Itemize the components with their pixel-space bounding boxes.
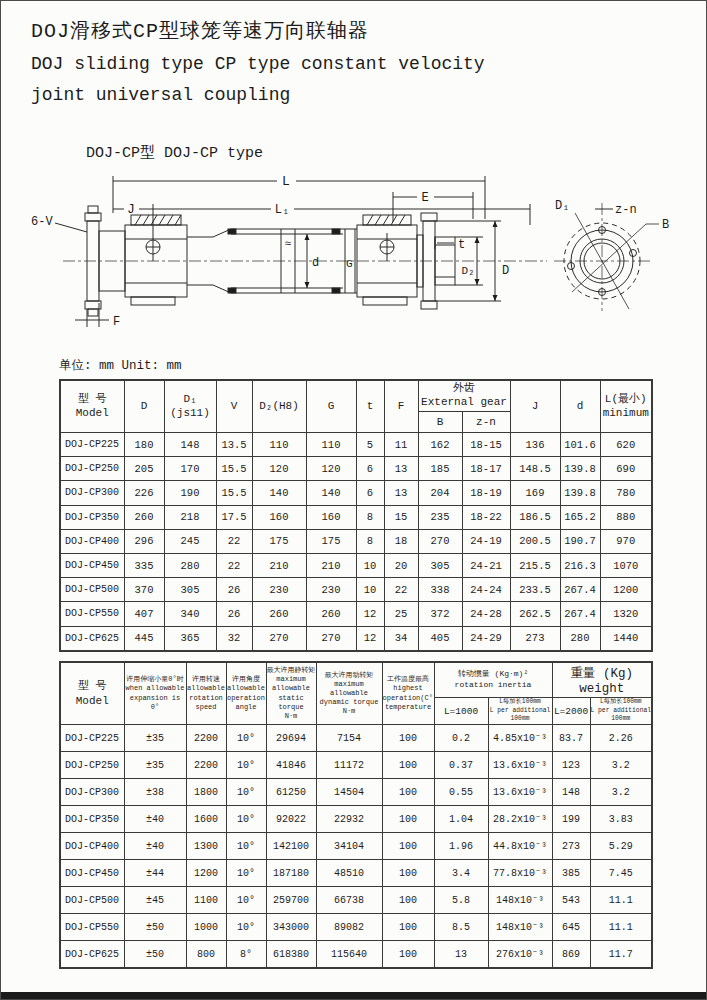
value-cell: 200.5: [510, 529, 560, 553]
value-cell: 1600: [186, 806, 226, 833]
table-row: DOJ-CP225±35220010°2969471541000.24.85x1…: [60, 725, 652, 752]
value-cell: 13.6x10⁻³: [488, 779, 552, 806]
value-cell: 100: [382, 914, 434, 941]
value-cell: 270: [418, 529, 462, 553]
value-cell: 100: [382, 860, 434, 887]
table-row: DOJ-CP35026021817.516016081523518-22186.…: [60, 505, 652, 529]
value-cell: 24-19: [462, 529, 510, 553]
value-cell: 34104: [316, 833, 382, 860]
value-cell: 405: [418, 626, 462, 651]
value-cell: 190.7: [560, 529, 600, 553]
value-cell: 407: [124, 602, 164, 626]
value-cell: 343000: [266, 914, 316, 941]
value-cell: 2200: [186, 725, 226, 752]
value-cell: 0.55: [434, 779, 488, 806]
value-cell: 115640: [316, 941, 382, 969]
value-cell: 690: [600, 457, 652, 481]
value-cell: 543: [552, 887, 590, 914]
value-cell: 245: [164, 529, 216, 553]
value-cell: 2.26: [590, 725, 652, 752]
table-row: DOJ-CP22518014813.511011051116218-151361…: [60, 433, 652, 457]
value-cell: 6: [356, 481, 384, 505]
value-cell: 0.37: [434, 752, 488, 779]
value-cell: 89082: [316, 914, 382, 941]
value-cell: 13: [384, 457, 418, 481]
value-cell: 110: [252, 433, 306, 457]
value-cell: 8°: [226, 941, 266, 969]
value-cell: 7.45: [590, 860, 652, 887]
value-cell: 123: [552, 752, 590, 779]
value-cell: 13.5: [216, 433, 252, 457]
value-cell: 25: [384, 602, 418, 626]
value-cell: 280: [560, 626, 600, 651]
value-cell: 880: [600, 505, 652, 529]
value-cell: 210: [306, 553, 356, 577]
value-cell: 10°: [226, 806, 266, 833]
value-cell: 139.8: [560, 457, 600, 481]
value-cell: 970: [600, 529, 652, 553]
model-cell: DOJ-CP250: [60, 752, 124, 779]
value-cell: 3.83: [590, 806, 652, 833]
value-cell: 10°: [226, 914, 266, 941]
model-cell: DOJ-CP225: [60, 433, 124, 457]
table-row: DOJ-CP450±44120010°187180485101003.477.8…: [60, 860, 652, 887]
dim-label-zn: z-n: [615, 203, 637, 217]
value-cell: 620: [600, 433, 652, 457]
dimensions-table-body: DOJ-CP22518014813.511011051116218-151361…: [60, 433, 652, 651]
model-cell: DOJ-CP300: [60, 481, 124, 505]
technical-drawing: L J L₁ E 6-V F ≈ d G t D₂ D D₁ z-n B: [25, 167, 687, 355]
value-cell: 100: [382, 779, 434, 806]
value-cell: 34: [384, 626, 418, 651]
value-cell: 218: [164, 505, 216, 529]
value-cell: 18-17: [462, 457, 510, 481]
value-cell: 1300: [186, 833, 226, 860]
value-cell: 22932: [316, 806, 382, 833]
value-cell: 204: [418, 481, 462, 505]
value-cell: 10°: [226, 860, 266, 887]
value-cell: 365: [164, 626, 216, 651]
value-cell: 148.5: [510, 457, 560, 481]
value-cell: 5.8: [434, 887, 488, 914]
value-cell: 100: [382, 941, 434, 969]
table-row: DOJ-CP50037030526230230102233824-24233.5…: [60, 578, 652, 602]
value-cell: 210: [252, 553, 306, 577]
value-cell: 215.5: [510, 553, 560, 577]
model-cell: DOJ-CP450: [60, 860, 124, 887]
th2-temperature: 工作温度最高 highest operation(C°) temperature: [382, 662, 434, 725]
th-model: 型 号 Model: [60, 380, 124, 433]
value-cell: 1440: [600, 626, 652, 651]
value-cell: 260: [306, 602, 356, 626]
model-cell: DOJ-CP350: [60, 806, 124, 833]
unit-note: 单位: mm Unit: mm: [59, 357, 182, 374]
th2-angle: 许用角度 allowable operation angle: [226, 662, 266, 725]
model-cell: DOJ-CP625: [60, 941, 124, 969]
value-cell: 11.1: [590, 914, 652, 941]
value-cell: 24-29: [462, 626, 510, 651]
value-cell: ±50: [124, 941, 186, 969]
value-cell: 645: [552, 914, 590, 941]
performance-table-body: DOJ-CP225±35220010°2969471541000.24.85x1…: [60, 725, 652, 969]
dim-label-L: L: [282, 174, 290, 189]
value-cell: 305: [164, 578, 216, 602]
dim-label-D2: D₂: [461, 265, 474, 277]
performance-table-head: 型 号 Model 许用伸缩小量0°时 when allowable expan…: [60, 662, 652, 725]
model-cell: DOJ-CP400: [60, 529, 124, 553]
value-cell: 61250: [266, 779, 316, 806]
value-cell: 276x10⁻³: [488, 941, 552, 969]
value-cell: 338: [418, 578, 462, 602]
value-cell: 5.29: [590, 833, 652, 860]
value-cell: 11.7: [590, 941, 652, 969]
th-t: t: [356, 380, 384, 433]
value-cell: ±44: [124, 860, 186, 887]
value-cell: 15: [384, 505, 418, 529]
value-cell: ±35: [124, 725, 186, 752]
page-bottom-edge: [1, 992, 706, 999]
value-cell: 77.8x10⁻³: [488, 860, 552, 887]
model-cell: DOJ-CP350: [60, 505, 124, 529]
value-cell: 3.4: [434, 860, 488, 887]
value-cell: 267.4: [560, 602, 600, 626]
dim-label-E: E: [421, 191, 428, 205]
value-cell: 230: [252, 578, 306, 602]
th-L-min: L(最小) minimum: [600, 380, 652, 433]
type-subtitle: DOJ-CP型 DOJ-CP type: [86, 143, 263, 162]
value-cell: 120: [306, 457, 356, 481]
value-cell: 1320: [600, 602, 652, 626]
value-cell: 340: [164, 602, 216, 626]
value-cell: 445: [124, 626, 164, 651]
value-cell: 22: [216, 553, 252, 577]
value-cell: 780: [600, 481, 652, 505]
value-cell: 15.5: [216, 457, 252, 481]
th2-inertia-l1000: L=1000: [434, 698, 488, 725]
th-D2: D₂(H8): [252, 380, 306, 433]
value-cell: 385: [552, 860, 590, 887]
value-cell: 100: [382, 833, 434, 860]
value-cell: 100: [382, 752, 434, 779]
table-row: DOJ-CP55040734026260260122537224-28262.5…: [60, 602, 652, 626]
value-cell: 1070: [600, 553, 652, 577]
model-cell: DOJ-CP550: [60, 914, 124, 941]
value-cell: 100: [382, 806, 434, 833]
value-cell: 0.2: [434, 725, 488, 752]
table-row: DOJ-CP45033528022210210102030524-21215.5…: [60, 553, 652, 577]
th-gear-B: B: [418, 412, 462, 433]
value-cell: 216.3: [560, 553, 600, 577]
value-cell: 4.85x10⁻³: [488, 725, 552, 752]
value-cell: 7154: [316, 725, 382, 752]
value-cell: 260: [252, 602, 306, 626]
value-cell: 15.5: [216, 481, 252, 505]
value-cell: 335: [124, 553, 164, 577]
value-cell: ±50: [124, 914, 186, 941]
value-cell: 230: [306, 578, 356, 602]
value-cell: 3.2: [590, 779, 652, 806]
value-cell: 41846: [266, 752, 316, 779]
value-cell: 44.8x10⁻³: [488, 833, 552, 860]
value-cell: 20: [384, 553, 418, 577]
model-cell: DOJ-CP300: [60, 779, 124, 806]
value-cell: 1.04: [434, 806, 488, 833]
value-cell: 11: [384, 433, 418, 457]
break-symbol: ≈: [285, 238, 292, 250]
value-cell: 226: [124, 481, 164, 505]
table-row: DOJ-CP30022619015.514014061320418-191691…: [60, 481, 652, 505]
value-cell: 28.2x10⁻³: [488, 806, 552, 833]
value-cell: 13: [434, 941, 488, 969]
table-row: DOJ-CP4002962452217517581827024-19200.51…: [60, 529, 652, 553]
catalog-page: DOJ滑移式CP型球笼等速万向联轴器 DOJ sliding type CP t…: [0, 0, 707, 1000]
value-cell: 148x10⁻³: [488, 914, 552, 941]
th-D1: D₁ (js11): [164, 380, 216, 433]
value-cell: 13: [384, 481, 418, 505]
value-cell: 110: [306, 433, 356, 457]
model-cell: DOJ-CP225: [60, 725, 124, 752]
value-cell: 142100: [266, 833, 316, 860]
table-row: DOJ-CP62544536532270270123440524-2927328…: [60, 626, 652, 651]
value-cell: 1000: [186, 914, 226, 941]
th-F: F: [384, 380, 418, 433]
model-cell: DOJ-CP500: [60, 887, 124, 914]
value-cell: 148: [552, 779, 590, 806]
th2-speed: 许用转速 allowable rotation speed: [186, 662, 226, 725]
value-cell: 186.5: [510, 505, 560, 529]
value-cell: 8: [356, 505, 384, 529]
model-cell: DOJ-CP450: [60, 553, 124, 577]
value-cell: 66738: [316, 887, 382, 914]
title-english-line2: joint universal coupling: [31, 80, 485, 111]
th2-inertia-per100: L每加长100mm L per additional 100mm: [488, 698, 552, 725]
value-cell: 11.1: [590, 887, 652, 914]
th2-weight: 重量 (Kg) weight: [552, 662, 652, 698]
value-cell: ±40: [124, 833, 186, 860]
th2-static-torque: 最大许用静转矩 maximum allowable static torque …: [266, 662, 316, 725]
value-cell: 18-22: [462, 505, 510, 529]
value-cell: 175: [252, 529, 306, 553]
table-row: DOJ-CP25020517015.512012061318518-17148.…: [60, 457, 652, 481]
th-gear-zn: z-n: [462, 412, 510, 433]
value-cell: 13.6x10⁻³: [488, 752, 552, 779]
value-cell: 148: [164, 433, 216, 457]
table-row: DOJ-CP250±35220010°41846111721000.3713.6…: [60, 752, 652, 779]
th-G: G: [306, 380, 356, 433]
value-cell: 205: [124, 457, 164, 481]
value-cell: 10°: [226, 779, 266, 806]
table-row: DOJ-CP400±40130010°142100341041001.9644.…: [60, 833, 652, 860]
th2-model: 型 号 Model: [60, 662, 124, 725]
performance-table: 型 号 Model 许用伸缩小量0°时 when allowable expan…: [59, 661, 653, 969]
value-cell: 3.2: [590, 752, 652, 779]
value-cell: 148x10⁻³: [488, 887, 552, 914]
value-cell: 92022: [266, 806, 316, 833]
table-row: DOJ-CP550±50100010°343000890821008.5148x…: [60, 914, 652, 941]
value-cell: 8.5: [434, 914, 488, 941]
value-cell: 14504: [316, 779, 382, 806]
value-cell: 136: [510, 433, 560, 457]
dim-label-L1: L₁: [275, 203, 289, 217]
value-cell: ±45: [124, 887, 186, 914]
model-cell: DOJ-CP400: [60, 833, 124, 860]
value-cell: 10: [356, 553, 384, 577]
th-d: d: [560, 380, 600, 433]
value-cell: 267.4: [560, 578, 600, 602]
table-row: DOJ-CP500±45110010°259700667381005.8148x…: [60, 887, 652, 914]
th-D: D: [124, 380, 164, 433]
dim-label-F: F: [113, 315, 120, 329]
value-cell: 10°: [226, 752, 266, 779]
value-cell: 29694: [266, 725, 316, 752]
th-external-gear: 外齿 External gear: [418, 380, 510, 412]
value-cell: 6: [356, 457, 384, 481]
dim-label-D1: D₁: [555, 199, 569, 213]
value-cell: 165.2: [560, 505, 600, 529]
value-cell: 1100: [186, 887, 226, 914]
value-cell: 100: [382, 725, 434, 752]
th-J: J: [510, 380, 560, 433]
value-cell: 1200: [600, 578, 652, 602]
value-cell: 273: [552, 833, 590, 860]
dim-label-6V: 6-V: [31, 215, 53, 229]
th2-weight-l2000: L=2000: [552, 698, 590, 725]
value-cell: 160: [252, 505, 306, 529]
value-cell: ±38: [124, 779, 186, 806]
value-cell: 618380: [266, 941, 316, 969]
value-cell: 12: [356, 602, 384, 626]
value-cell: 18-15: [462, 433, 510, 457]
dim-label-J: J: [127, 202, 135, 217]
value-cell: 83.7: [552, 725, 590, 752]
value-cell: 120: [252, 457, 306, 481]
value-cell: 139.8: [560, 481, 600, 505]
value-cell: 235: [418, 505, 462, 529]
value-cell: 18: [384, 529, 418, 553]
value-cell: 22: [216, 529, 252, 553]
value-cell: 169: [510, 481, 560, 505]
value-cell: 162: [418, 433, 462, 457]
value-cell: 180: [124, 433, 164, 457]
value-cell: 170: [164, 457, 216, 481]
value-cell: 24-28: [462, 602, 510, 626]
dim-label-t: t: [458, 238, 465, 252]
value-cell: 270: [306, 626, 356, 651]
value-cell: 32: [216, 626, 252, 651]
value-cell: 26: [216, 578, 252, 602]
value-cell: 305: [418, 553, 462, 577]
value-cell: 18-19: [462, 481, 510, 505]
value-cell: 2200: [186, 752, 226, 779]
dimensions-table: 型 号 Model D D₁ (js11) V D₂(H8) G t F 外齿 …: [59, 379, 653, 652]
value-cell: 869: [552, 941, 590, 969]
dim-label-D: D: [502, 264, 509, 278]
value-cell: 26: [216, 602, 252, 626]
model-cell: DOJ-CP250: [60, 457, 124, 481]
value-cell: 370: [124, 578, 164, 602]
value-cell: ±40: [124, 806, 186, 833]
value-cell: 270: [252, 626, 306, 651]
value-cell: 11172: [316, 752, 382, 779]
coupling-diagram-svg: L J L₁ E 6-V F ≈ d G t D₂ D D₁ z-n B: [25, 167, 687, 355]
value-cell: 24-24: [462, 578, 510, 602]
dim-label-d: d: [312, 256, 319, 270]
value-cell: 199: [552, 806, 590, 833]
value-cell: 17.5: [216, 505, 252, 529]
dimensions-table-head: 型 号 Model D D₁ (js11) V D₂(H8) G t F 外齿 …: [60, 380, 652, 433]
value-cell: 233.5: [510, 578, 560, 602]
th2-inertia: 转动惯量 (Kg·m)² rotation inertia: [434, 662, 552, 698]
value-cell: 1.96: [434, 833, 488, 860]
value-cell: 10°: [226, 833, 266, 860]
value-cell: 24-21: [462, 553, 510, 577]
value-cell: 1800: [186, 779, 226, 806]
th-V: V: [216, 380, 252, 433]
value-cell: 10°: [226, 887, 266, 914]
dim-label-G: G: [346, 258, 353, 270]
table-row: DOJ-CP300±38180010°61250145041000.5513.6…: [60, 779, 652, 806]
model-cell: DOJ-CP550: [60, 602, 124, 626]
table-row: DOJ-CP350±40160010°92022229321001.0428.2…: [60, 806, 652, 833]
value-cell: 262.5: [510, 602, 560, 626]
value-cell: 187180: [266, 860, 316, 887]
value-cell: 12: [356, 626, 384, 651]
title-english-line1: DOJ sliding type CP type constant veloci…: [31, 49, 485, 80]
th2-expansion: 许用伸缩小量0°时 when allowable expansion is 0°: [124, 662, 186, 725]
model-cell: DOJ-CP500: [60, 578, 124, 602]
value-cell: 260: [124, 505, 164, 529]
value-cell: 175: [306, 529, 356, 553]
value-cell: 140: [252, 481, 306, 505]
model-cell: DOJ-CP625: [60, 626, 124, 651]
value-cell: 280: [164, 553, 216, 577]
value-cell: 10°: [226, 725, 266, 752]
value-cell: 160: [306, 505, 356, 529]
value-cell: 100: [382, 887, 434, 914]
value-cell: 273: [510, 626, 560, 651]
value-cell: 140: [306, 481, 356, 505]
value-cell: 48510: [316, 860, 382, 887]
value-cell: ±35: [124, 752, 186, 779]
value-cell: 372: [418, 602, 462, 626]
table-row: DOJ-CP625±508008°61838011564010013276x10…: [60, 941, 652, 969]
value-cell: 8: [356, 529, 384, 553]
value-cell: 10: [356, 578, 384, 602]
value-cell: 190: [164, 481, 216, 505]
title-chinese: DOJ滑移式CP型球笼等速万向联轴器: [31, 15, 485, 49]
th2-weight-per100: L每加长100mm L per additional 100mm: [590, 698, 652, 725]
value-cell: 22: [384, 578, 418, 602]
value-cell: 800: [186, 941, 226, 969]
dim-label-B: B: [662, 218, 669, 232]
value-cell: 185: [418, 457, 462, 481]
th2-dynamic-torque: 最大许用动转矩 maximum allowable dynamic torque…: [316, 662, 382, 725]
value-cell: 5: [356, 433, 384, 457]
value-cell: 1200: [186, 860, 226, 887]
page-title: DOJ滑移式CP型球笼等速万向联轴器 DOJ sliding type CP t…: [31, 15, 485, 111]
value-cell: 101.6: [560, 433, 600, 457]
value-cell: 259700: [266, 887, 316, 914]
value-cell: 296: [124, 529, 164, 553]
